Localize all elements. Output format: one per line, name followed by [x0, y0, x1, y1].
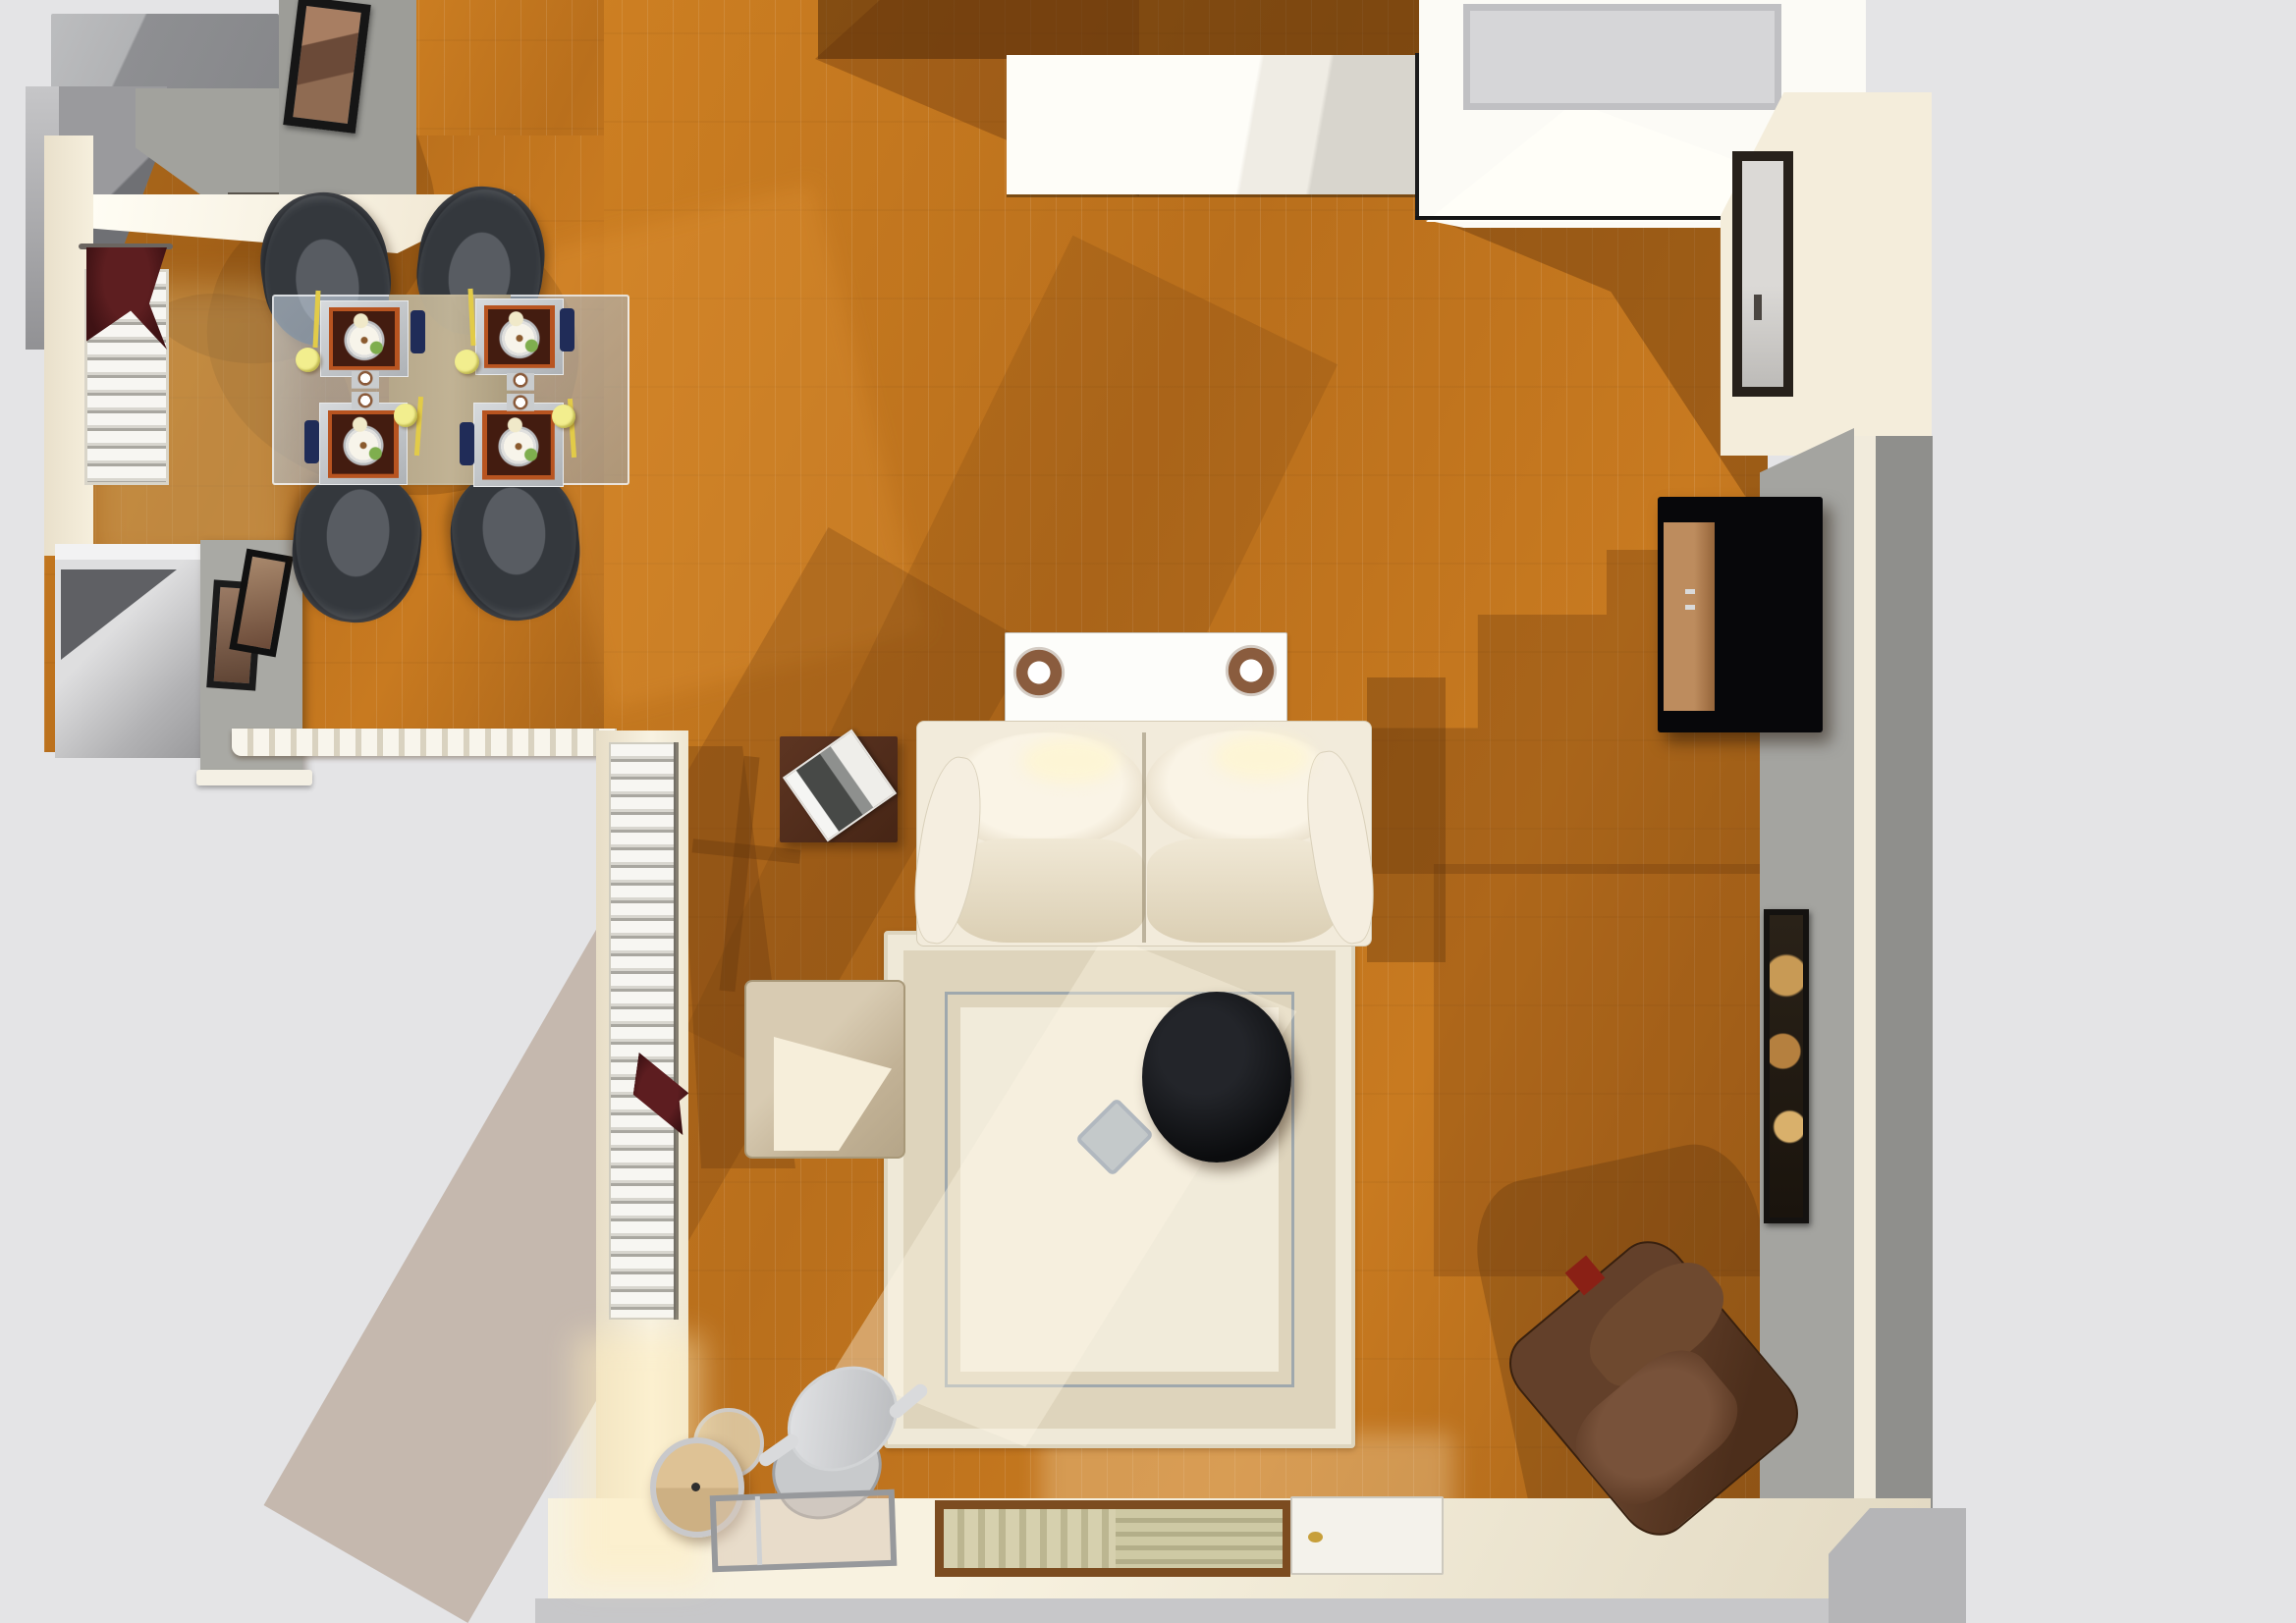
right-cream-strip	[1854, 436, 1876, 1538]
living-blinds-edge	[674, 742, 679, 1320]
left-sideboard-top-edge	[55, 544, 200, 560]
bottom-door-knob	[1308, 1532, 1323, 1542]
napkin-bottom-right	[460, 422, 474, 465]
drum-table-center-dot	[691, 1483, 700, 1491]
center-dishes-right	[507, 371, 534, 412]
bottom-window-shade-right	[1116, 1509, 1283, 1568]
center-dishes-left	[352, 369, 379, 410]
wavy-valance	[232, 729, 617, 756]
place-setting-bottom-right	[473, 403, 564, 487]
cabinet-handle-2	[1685, 605, 1695, 610]
place-setting-top-left	[320, 300, 409, 377]
sofa-center-seam	[1142, 732, 1146, 943]
floorplan-3d-render[interactable]	[0, 0, 2296, 1623]
right-stone-outer	[1876, 436, 1933, 1538]
sofa-seat-cushion-right	[1147, 839, 1338, 943]
entry-wall-line-v	[1415, 53, 1419, 220]
living-window-blinds	[609, 742, 676, 1320]
sofa-light-glow-left	[1021, 738, 1120, 784]
napkin-bottom-left	[304, 420, 319, 463]
doorway-box	[1007, 55, 1419, 194]
rattan-charger-left	[1011, 642, 1066, 703]
napkin-top-right	[560, 308, 574, 352]
panel-sill	[196, 770, 312, 785]
rattan-charger-right	[1224, 640, 1279, 701]
lemon-top-left	[296, 348, 320, 372]
lemon-bottom-left	[394, 404, 417, 427]
lemon-top-right	[455, 350, 479, 374]
topright-window	[1732, 151, 1793, 397]
cabinet-door-face	[1664, 522, 1715, 711]
black-round-ottoman	[1142, 992, 1291, 1163]
glass-desk	[710, 1489, 898, 1573]
sofa-seat-cushion-left	[955, 839, 1145, 943]
sofa-light-glow-right	[1213, 734, 1311, 780]
napkin-top-left	[410, 310, 425, 353]
entry-door-mat	[1463, 4, 1781, 110]
topright-window-handle	[1754, 295, 1762, 320]
bottom-outer-strip	[535, 1598, 1933, 1623]
place-setting-top-right	[475, 298, 564, 375]
cabinet-handle-1	[1685, 589, 1695, 594]
right-wall-artwork	[1764, 909, 1809, 1223]
sofa-cast-shadow	[1367, 677, 1446, 962]
lemon-bottom-right	[552, 405, 575, 428]
